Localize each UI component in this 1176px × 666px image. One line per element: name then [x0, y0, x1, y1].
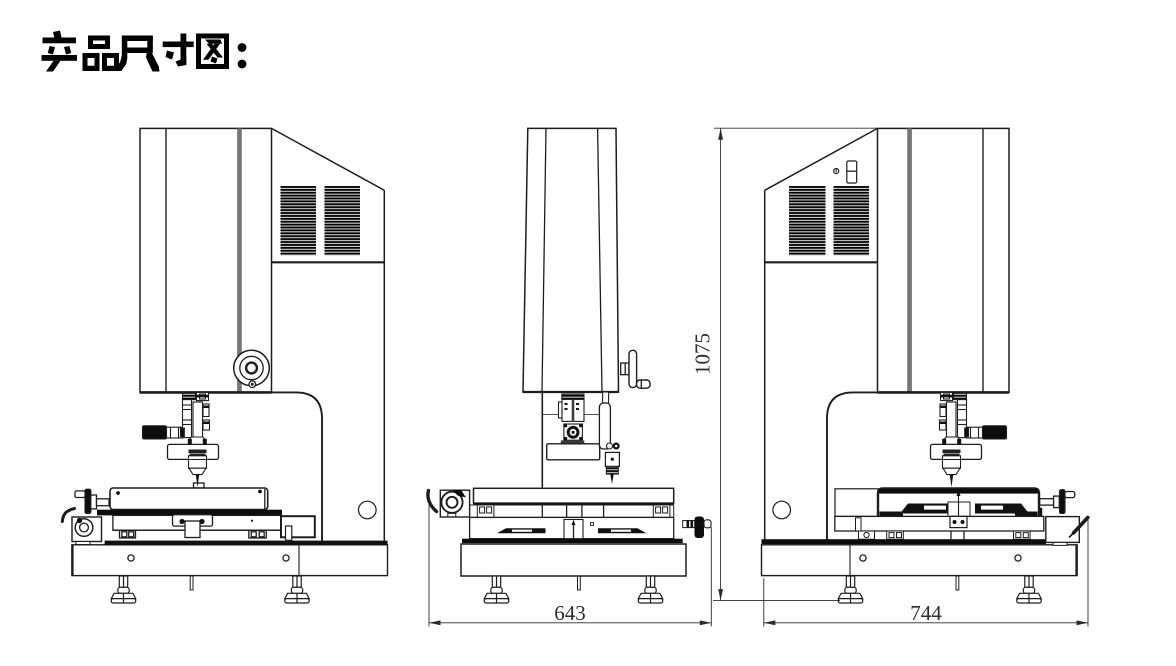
svg-text:643: 643: [554, 601, 586, 625]
svg-text:744: 744: [910, 601, 942, 625]
svg-text:1075: 1075: [691, 333, 715, 375]
